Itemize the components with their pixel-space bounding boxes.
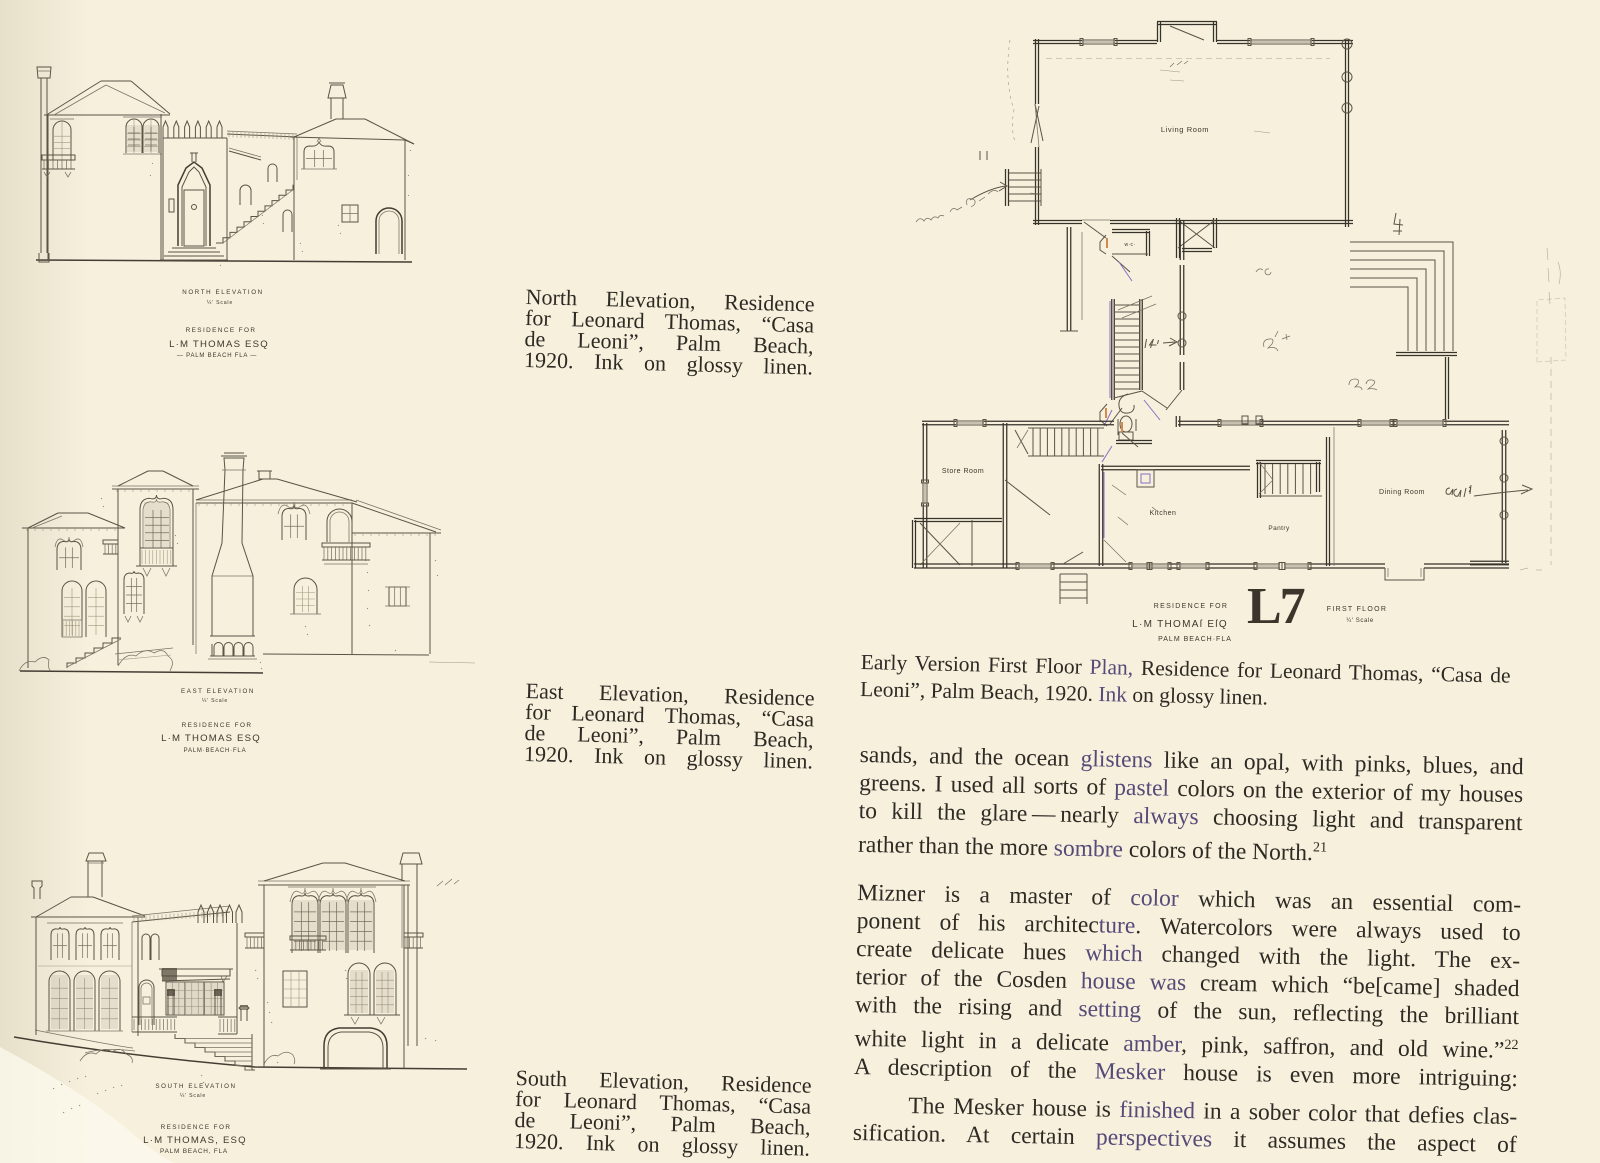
- svg-text:RESIDENCE FOR: RESIDENCE FOR: [186, 327, 257, 334]
- svg-text:¼′ Scale: ¼′ Scale: [1346, 618, 1374, 624]
- svg-text:SOUTH ELEVATION: SOUTH ELEVATION: [155, 1083, 236, 1090]
- svg-text:L7: L7: [1247, 578, 1305, 635]
- svg-text:FIRST FLOOR: FIRST FLOOR: [1327, 606, 1387, 613]
- svg-text:L·M THOMAS ESQ: L·M THOMAS ESQ: [169, 339, 269, 350]
- svg-text:PALM·BEACH·FLA: PALM·BEACH·FLA: [184, 748, 247, 754]
- svg-text:Living Room: Living Room: [1161, 125, 1209, 134]
- svg-text:¼′ Scale: ¼′ Scale: [207, 300, 233, 306]
- svg-text:EAST ELEVATION: EAST ELEVATION: [181, 688, 255, 695]
- svg-text:Kitchen: Kitchen: [1150, 510, 1177, 517]
- svg-text:RESIDENCE FOR: RESIDENCE FOR: [1154, 603, 1228, 610]
- svg-text:RESIDENCE FOR: RESIDENCE FOR: [182, 722, 253, 729]
- svg-text:¼′ Scale: ¼′ Scale: [180, 1093, 206, 1099]
- svg-text:¼′ Scale: ¼′ Scale: [202, 698, 228, 704]
- svg-text:L·M THOMAS ESQ: L·M THOMAS ESQ: [161, 733, 261, 744]
- svg-text:Dining Room: Dining Room: [1379, 489, 1425, 496]
- svg-text:— PALM BEACH FLA —: — PALM BEACH FLA —: [177, 353, 257, 359]
- svg-text:w·c·: w·c·: [1124, 242, 1135, 248]
- svg-text:Pantry: Pantry: [1268, 525, 1290, 532]
- svg-text:RESIDENCE FOR: RESIDENCE FOR: [161, 1124, 232, 1131]
- svg-text:NORTH ELEVATION: NORTH ELEVATION: [182, 289, 263, 296]
- svg-text:L·M THOMAS, ESQ: L·M THOMAS, ESQ: [143, 1135, 247, 1146]
- svg-text:PALM BEACH, FLA: PALM BEACH, FLA: [160, 1148, 228, 1155]
- svg-text:L·M THOMAſ EſQ: L·M THOMAſ EſQ: [1132, 619, 1228, 630]
- svg-text:PALM BEACH·FLA: PALM BEACH·FLA: [1158, 636, 1232, 643]
- svg-text:Store Room: Store Room: [942, 468, 984, 475]
